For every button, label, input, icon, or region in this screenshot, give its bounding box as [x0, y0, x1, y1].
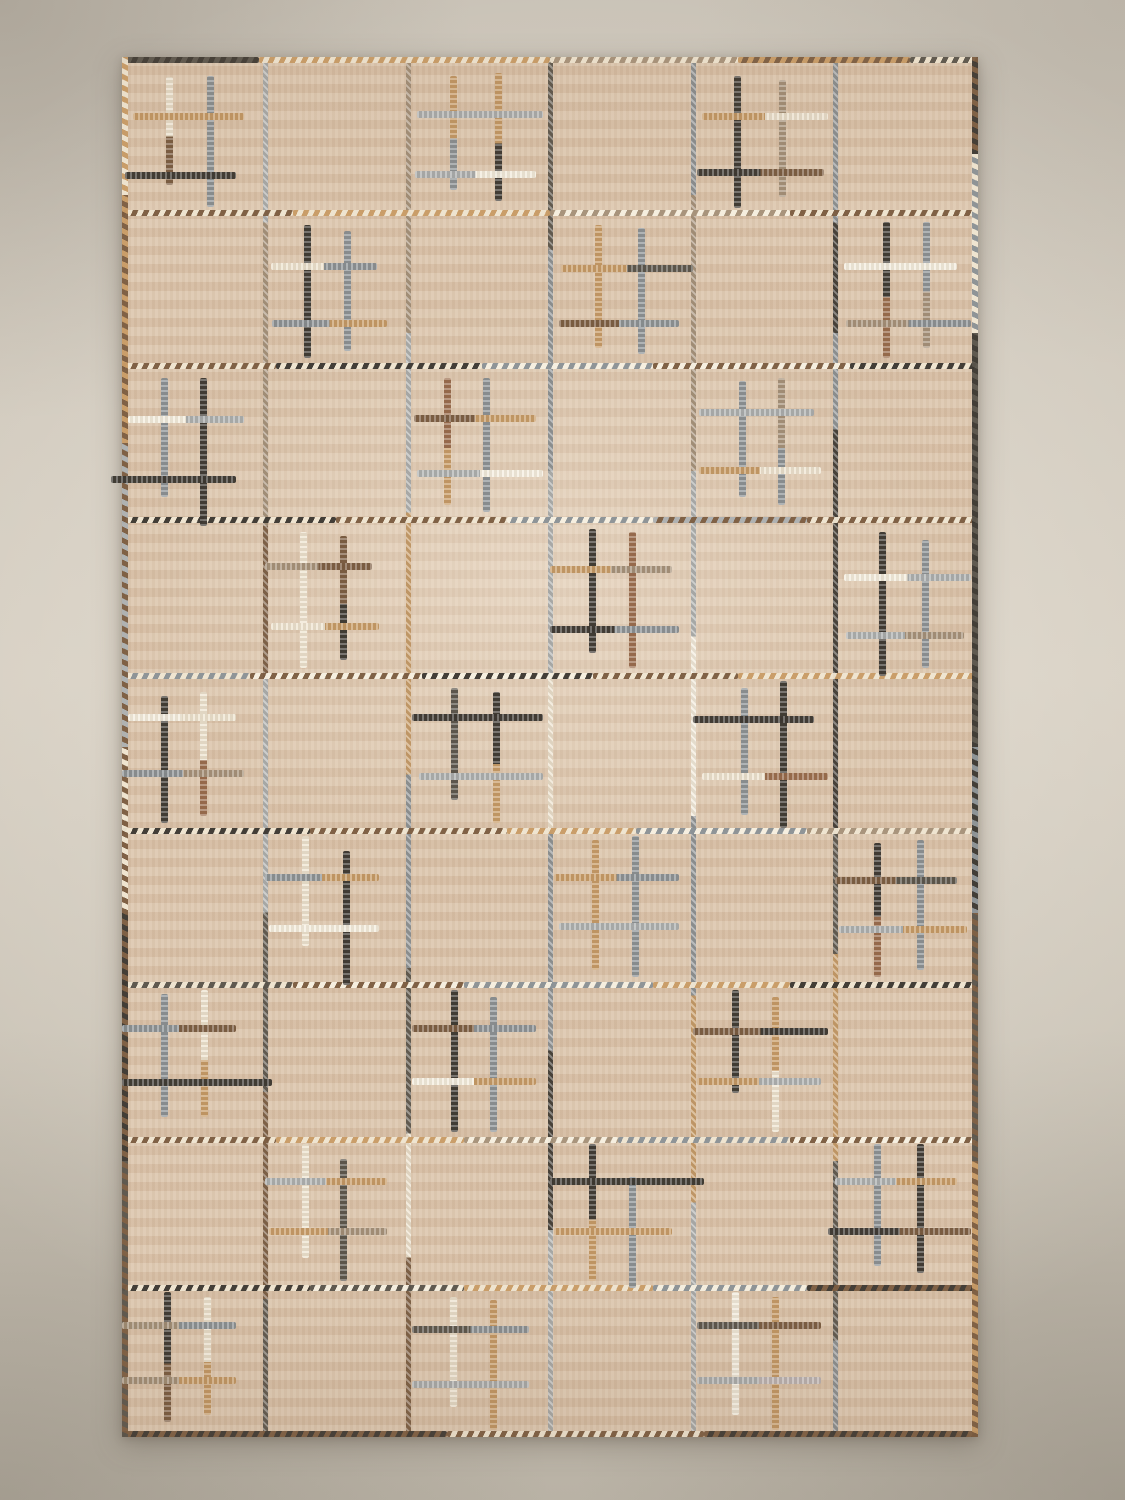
yarn-stroke-horizontal [844, 574, 971, 581]
rug-border-right [972, 1161, 978, 1437]
yarn-stroke-horizontal [122, 1079, 272, 1086]
grid-line-horizontal [293, 982, 464, 988]
yarn-stroke-vertical [201, 990, 208, 1117]
yarn-stroke-vertical [874, 1144, 881, 1265]
rug [122, 57, 978, 1437]
yarn-stroke-vertical [495, 73, 502, 201]
yarn-stroke-horizontal [693, 1028, 828, 1035]
grid-line-horizontal [293, 210, 550, 216]
yarn-stroke-horizontal [839, 926, 966, 933]
yarn-stroke-vertical [166, 77, 173, 185]
grid-line-horizontal [653, 363, 850, 369]
grid-line-horizontal [464, 1285, 652, 1291]
rug-border-top [738, 57, 909, 63]
yarn-stroke-vertical [204, 1297, 211, 1415]
yarn-stroke-horizontal [412, 1025, 536, 1032]
grid-line-vertical [406, 57, 411, 1437]
yarn-stroke-vertical [450, 1297, 457, 1407]
yarn-stroke-horizontal [846, 320, 970, 327]
grid-line-vertical [263, 57, 268, 1437]
yarn-stroke-vertical [164, 1292, 171, 1422]
grid-line-horizontal [738, 673, 978, 679]
yarn-stroke-vertical [161, 994, 168, 1116]
yarn-stroke-horizontal [693, 716, 814, 723]
yarn-stroke-vertical [490, 997, 497, 1132]
yarn-stroke-vertical [638, 228, 645, 353]
grid-line-horizontal [464, 1137, 618, 1143]
yarn-stroke-vertical [200, 692, 207, 816]
yarn-stroke-vertical [207, 76, 214, 207]
stone-floor [0, 0, 1125, 1500]
grid-line-horizontal [276, 363, 481, 369]
yarn-stroke-horizontal [559, 923, 679, 930]
rug-border-top [259, 57, 550, 63]
rug-border-right [972, 333, 978, 747]
yarn-stroke-horizontal [414, 415, 536, 422]
yarn-stroke-horizontal [265, 1178, 387, 1185]
yarn-stroke-horizontal [417, 470, 543, 477]
grid-line-horizontal [122, 982, 293, 988]
grid-line-horizontal [807, 828, 978, 834]
yarn-stroke-vertical [917, 840, 924, 969]
yarn-stroke-horizontal [265, 874, 379, 881]
yarn-stroke-horizontal [554, 874, 678, 881]
grid-line-horizontal [790, 1137, 978, 1143]
grid-line-horizontal [593, 673, 739, 679]
yarn-stroke-horizontal [835, 877, 957, 884]
grid-line-vertical [691, 57, 696, 1437]
grid-line-horizontal [276, 1137, 464, 1143]
yarn-stroke-vertical [343, 851, 350, 985]
yarn-stroke-horizontal [412, 1326, 528, 1333]
yarn-stroke-vertical [779, 80, 786, 197]
yarn-stroke-horizontal [412, 714, 543, 721]
yarn-stroke-horizontal [550, 1178, 704, 1185]
yarn-stroke-vertical [589, 529, 596, 652]
yarn-stroke-horizontal [122, 1377, 236, 1384]
rug-border-left [122, 443, 128, 747]
grid-line-horizontal [790, 982, 978, 988]
rug-border-bottom [122, 1431, 447, 1437]
yarn-stroke-horizontal [269, 925, 379, 932]
yarn-stroke-vertical [589, 1144, 596, 1280]
yarn-stroke-horizontal [265, 563, 372, 570]
rug-border-top [122, 57, 259, 63]
yarn-stroke-horizontal [122, 770, 244, 777]
yarn-stroke-horizontal [128, 416, 244, 423]
yarn-stroke-vertical [772, 1297, 779, 1430]
grid-line-horizontal [653, 982, 790, 988]
rug-border-bottom [704, 1431, 978, 1437]
yarn-stroke-horizontal [272, 320, 386, 327]
yarn-stroke-vertical [879, 532, 886, 676]
grid-line-horizontal [807, 517, 978, 523]
yarn-stroke-horizontal [271, 623, 380, 630]
yarn-stroke-vertical [780, 681, 787, 828]
grid-line-horizontal [122, 210, 293, 216]
rug-border-right [972, 57, 978, 154]
yarn-stroke-horizontal [412, 1078, 536, 1085]
yarn-stroke-horizontal [550, 566, 672, 573]
grid-line-horizontal [807, 1285, 978, 1291]
yarn-stroke-vertical [734, 76, 741, 209]
yarn-stroke-vertical [917, 1144, 924, 1273]
yarn-stroke-vertical [923, 222, 930, 347]
yarn-stroke-horizontal [554, 1228, 671, 1235]
yarn-stroke-vertical [629, 532, 636, 668]
yarn-stroke-vertical [340, 536, 347, 661]
yarn-stroke-vertical [302, 1144, 309, 1258]
yarn-stroke-vertical [592, 840, 599, 969]
grid-line-horizontal [122, 1137, 276, 1143]
grid-line-horizontal [422, 673, 593, 679]
yarn-stroke-vertical [200, 378, 207, 526]
yarn-stroke-horizontal [697, 169, 823, 176]
yarn-stroke-horizontal [415, 171, 536, 178]
yarn-stroke-vertical [493, 692, 500, 824]
grid-line-horizontal [464, 982, 652, 988]
rug-border-left [122, 913, 128, 1161]
yarn-stroke-vertical [451, 688, 458, 800]
yarn-stroke-horizontal [699, 409, 814, 416]
yarn-stroke-horizontal [702, 113, 828, 120]
yarn-stroke-horizontal [697, 1322, 821, 1329]
grid-line-horizontal [618, 1137, 789, 1143]
grid-line-horizontal [310, 1285, 464, 1291]
yarn-stroke-horizontal [697, 1078, 821, 1085]
yarn-stroke-horizontal [419, 773, 543, 780]
grid-line-horizontal [122, 363, 276, 369]
yarn-stroke-vertical [490, 1300, 497, 1430]
grid-line-horizontal [310, 828, 507, 834]
yarn-stroke-horizontal [835, 1178, 957, 1185]
grid-line-horizontal [122, 517, 336, 523]
grid-line-horizontal [653, 517, 807, 523]
yarn-stroke-horizontal [269, 1228, 386, 1235]
grid-line-horizontal [122, 828, 310, 834]
yarn-stroke-vertical [741, 688, 748, 815]
yarn-stroke-horizontal [697, 1377, 821, 1384]
rug-border-left [122, 195, 128, 443]
grid-line-horizontal [653, 1285, 807, 1291]
yarn-stroke-vertical [304, 225, 311, 358]
yarn-stroke-vertical [632, 836, 639, 978]
yarn-stroke-horizontal [550, 626, 679, 633]
yarn-stroke-horizontal [559, 320, 679, 327]
grid-line-vertical [548, 57, 553, 1437]
yarn-stroke-vertical [451, 990, 458, 1133]
yarn-stroke-vertical [883, 222, 890, 358]
rug-border-top [910, 57, 978, 63]
yarn-stroke-vertical [739, 381, 746, 497]
yarn-stroke-vertical [732, 1292, 739, 1414]
grid-line-horizontal [550, 210, 790, 216]
yarn-stroke-vertical [778, 378, 785, 504]
rug-border-right [972, 913, 978, 1161]
yarn-stroke-horizontal [846, 632, 963, 639]
grid-line-horizontal [482, 363, 653, 369]
rug-border-top [550, 57, 738, 63]
grid-line-horizontal [336, 517, 507, 523]
yarn-stroke-horizontal [128, 714, 237, 721]
yarn-stroke-horizontal [844, 263, 957, 270]
yarn-stroke-horizontal [702, 773, 828, 780]
yarn-stroke-horizontal [417, 111, 543, 118]
yarn-stroke-horizontal [111, 476, 237, 483]
yarn-stroke-vertical [922, 540, 929, 668]
yarn-stroke-horizontal [828, 1228, 971, 1235]
grid-line-horizontal [122, 1285, 310, 1291]
yarn-stroke-vertical [874, 843, 881, 977]
yarn-stroke-vertical [595, 225, 602, 347]
yarn-stroke-horizontal [133, 113, 243, 120]
yarn-stroke-horizontal [561, 265, 693, 272]
grid-line-horizontal [507, 517, 653, 523]
rug-border-bottom [447, 1431, 704, 1437]
yarn-stroke-horizontal [699, 467, 821, 474]
yarn-stroke-horizontal [122, 1025, 236, 1032]
grid-line-horizontal [850, 363, 978, 369]
yarn-stroke-horizontal [412, 1381, 528, 1388]
grid-line-horizontal [250, 673, 421, 679]
grid-line-horizontal [790, 210, 978, 216]
yarn-stroke-vertical [772, 997, 779, 1132]
grid-line-horizontal [636, 828, 807, 834]
rug-border-right [972, 747, 978, 913]
yarn-stroke-horizontal [271, 263, 377, 270]
yarn-stroke-vertical [444, 378, 451, 504]
yarn-stroke-horizontal [122, 1322, 236, 1329]
rug-border-left [122, 1161, 128, 1437]
yarn-stroke-horizontal [125, 172, 237, 179]
yarn-stroke-vertical [300, 532, 307, 668]
rug-border-right [972, 154, 978, 333]
yarn-stroke-vertical [344, 231, 351, 350]
grid-line-horizontal [507, 828, 635, 834]
grid-line-horizontal [122, 673, 250, 679]
yarn-stroke-vertical [483, 378, 490, 512]
